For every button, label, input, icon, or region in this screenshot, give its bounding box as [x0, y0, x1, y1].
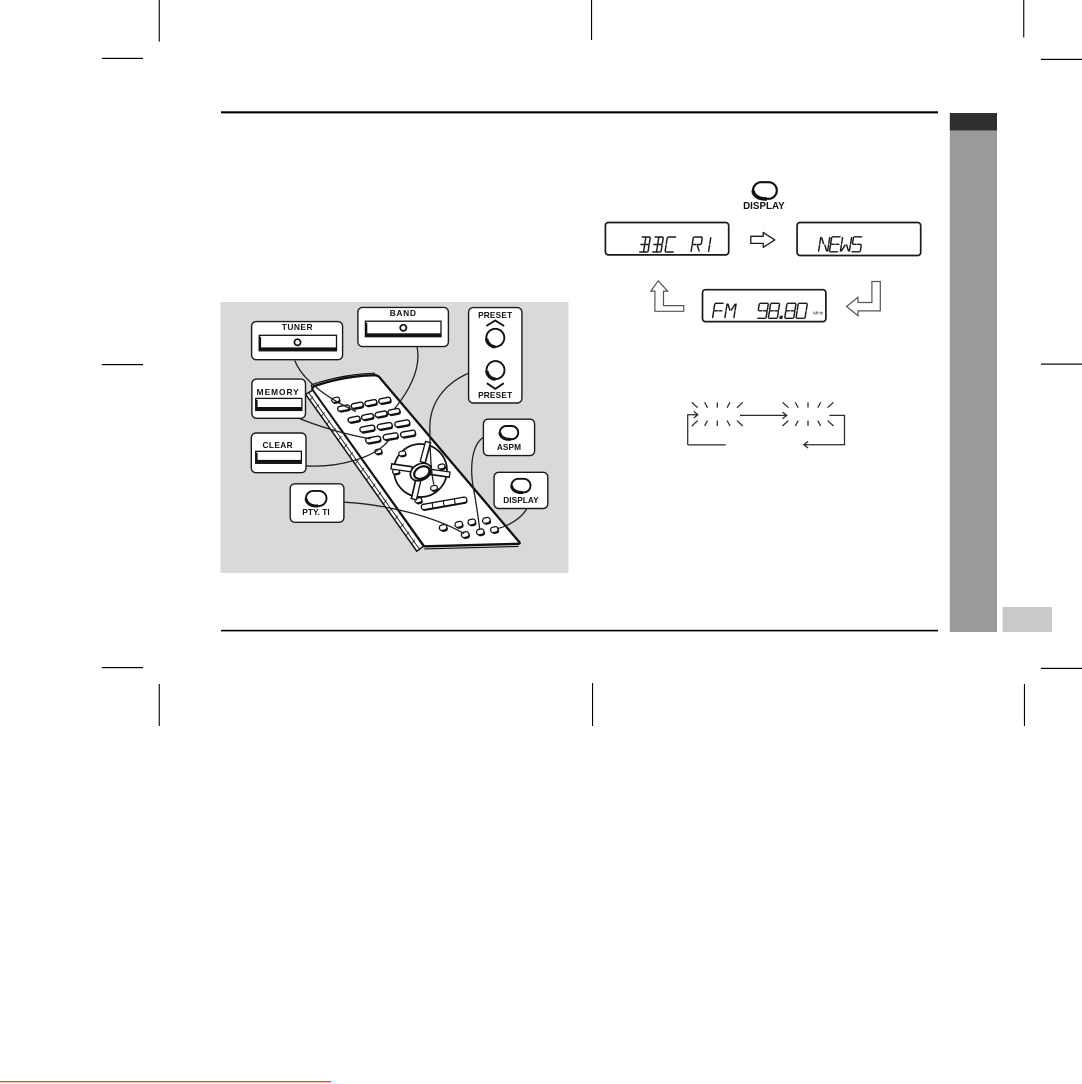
svg-text:MEMORY: MEMORY: [257, 387, 300, 397]
svg-text:PRESET: PRESET: [478, 311, 512, 320]
svg-text:DISPLAY: DISPLAY: [743, 201, 785, 212]
svg-text:MHz: MHz: [813, 311, 823, 317]
svg-text:PRESET: PRESET: [478, 391, 512, 400]
svg-text:PTY. TI: PTY. TI: [302, 507, 329, 517]
svg-text:DISPLAY: DISPLAY: [503, 496, 539, 505]
svg-text:CLEAR: CLEAR: [263, 440, 294, 450]
svg-text:ASPM: ASPM: [497, 442, 521, 452]
svg-text:BAND: BAND: [390, 308, 417, 318]
svg-text:TUNER: TUNER: [282, 322, 313, 332]
